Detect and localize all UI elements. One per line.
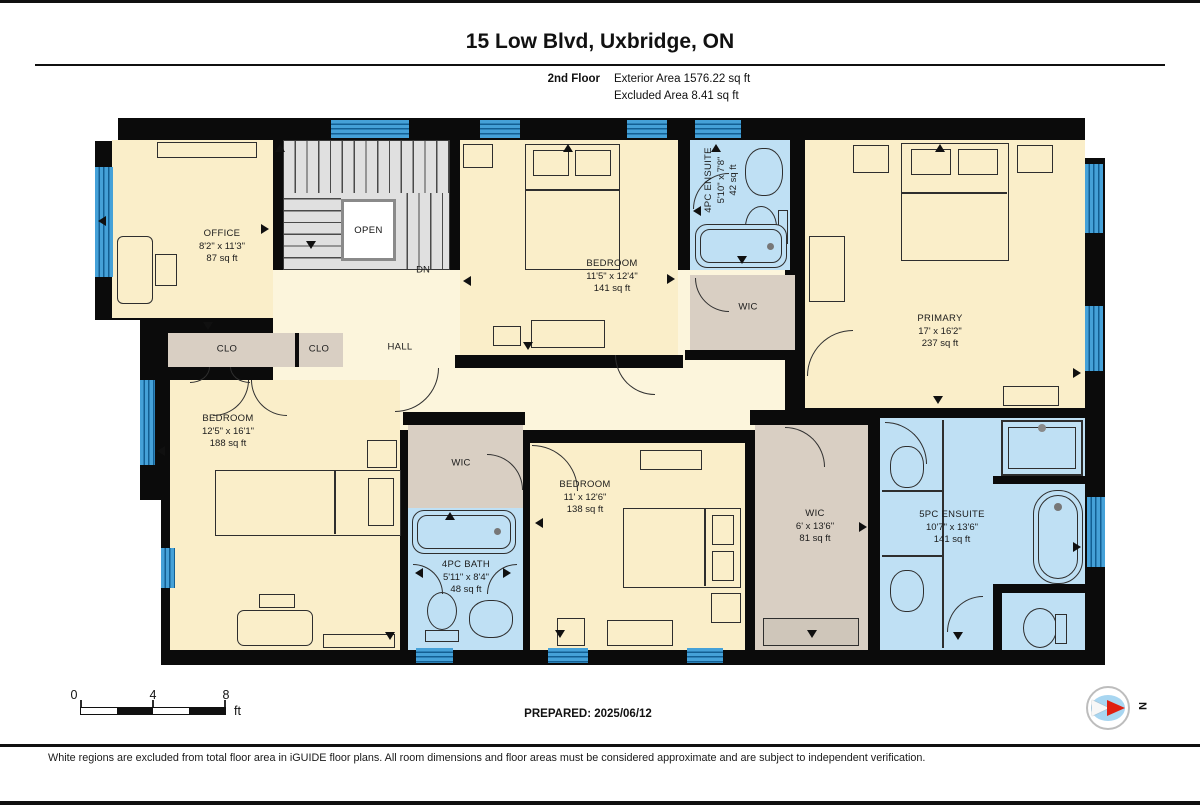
stair-down-arrow-icon bbox=[306, 241, 316, 249]
dresser-icon bbox=[640, 450, 702, 470]
direction-arrow bbox=[523, 342, 533, 350]
direction-arrow bbox=[203, 322, 213, 330]
blanket-line bbox=[902, 192, 1007, 194]
direction-arrow bbox=[693, 206, 701, 216]
window-icon bbox=[695, 120, 741, 138]
bathtub-icon bbox=[1033, 490, 1083, 584]
top-border bbox=[0, 0, 1200, 3]
chair-icon bbox=[155, 254, 177, 286]
stair-open-label: OPEN bbox=[341, 199, 396, 261]
bench-icon bbox=[607, 620, 673, 646]
stair-treads bbox=[396, 193, 449, 269]
room-label-bedroom-left: BEDROOM 12'5" x 16'1" 188 sq ft bbox=[202, 413, 254, 451]
exterior-notch bbox=[95, 500, 161, 665]
direction-arrow bbox=[1073, 542, 1081, 552]
nightstand-icon bbox=[367, 440, 397, 468]
page-title: 15 Low Blvd, Uxbridge, ON bbox=[0, 30, 1200, 54]
direction-arrow bbox=[157, 446, 165, 456]
wall-segment bbox=[993, 584, 1002, 650]
stair-treads bbox=[284, 193, 341, 269]
counter-line bbox=[882, 555, 942, 557]
room-label-wic-right: WIC 6' x 13'6" 81 sq ft bbox=[796, 508, 834, 546]
tub-drain bbox=[767, 243, 774, 250]
direction-arrow bbox=[555, 630, 565, 638]
direction-arrow bbox=[535, 518, 543, 528]
compass-icon bbox=[1086, 686, 1134, 730]
wall-segment bbox=[403, 412, 525, 425]
dresser-icon bbox=[531, 320, 605, 348]
direction-arrow bbox=[737, 256, 747, 264]
shower-head bbox=[1038, 424, 1046, 432]
room-label-hall: HALL bbox=[388, 342, 413, 355]
bed-icon bbox=[623, 508, 741, 588]
room-label-clo2: CLO bbox=[309, 344, 329, 357]
direction-arrow bbox=[933, 396, 943, 404]
excluded-area: Excluded Area 8.41 sq ft bbox=[614, 90, 739, 102]
room-label-wic-mid: WIC bbox=[451, 458, 470, 471]
window-icon bbox=[140, 380, 155, 465]
direction-arrow bbox=[385, 632, 395, 640]
desk-icon bbox=[237, 610, 313, 646]
room-label-bedroom-mid: BEDROOM 11' x 12'6" 138 sq ft bbox=[559, 479, 610, 517]
window-icon bbox=[480, 120, 520, 138]
direction-arrow bbox=[807, 630, 817, 638]
room-label-office: OFFICE 8'2" x 11'3" 87 sq ft bbox=[199, 228, 245, 266]
scale-tick-mark bbox=[80, 700, 82, 707]
wall-segment bbox=[993, 476, 1085, 484]
staircase: OPEN bbox=[283, 140, 450, 270]
pillow-icon bbox=[712, 551, 734, 581]
direction-arrow bbox=[463, 276, 471, 286]
toilet-icon bbox=[427, 592, 457, 630]
direction-arrow bbox=[503, 568, 511, 578]
nightstand-icon bbox=[463, 144, 493, 168]
window-icon bbox=[1087, 497, 1105, 567]
shower-inner bbox=[1008, 427, 1076, 469]
shelf-icon bbox=[157, 142, 257, 158]
direction-arrow bbox=[415, 568, 423, 578]
direction-arrow bbox=[1073, 368, 1081, 378]
nightstand-icon bbox=[493, 326, 521, 346]
dresser-icon bbox=[809, 236, 845, 302]
window-icon bbox=[331, 120, 409, 138]
bed-icon bbox=[215, 470, 401, 536]
wall-segment bbox=[993, 584, 1085, 593]
prepared-date: PREPARED: 2025/06/12 bbox=[438, 708, 738, 720]
bathtub-icon bbox=[412, 510, 516, 554]
desk-icon bbox=[117, 236, 153, 304]
blanket-line bbox=[526, 189, 619, 191]
nightstand-icon bbox=[711, 593, 741, 623]
stair-dn-label: DN bbox=[416, 265, 430, 278]
direction-arrow bbox=[953, 632, 963, 640]
wall-segment bbox=[685, 350, 795, 360]
wall-segment bbox=[750, 410, 873, 425]
counter-line bbox=[882, 490, 942, 492]
pillow-icon bbox=[368, 478, 394, 526]
tub-drain bbox=[494, 528, 501, 535]
window-icon bbox=[687, 648, 723, 663]
chair-icon bbox=[259, 594, 295, 608]
bench-icon bbox=[1003, 386, 1059, 406]
window-icon bbox=[548, 648, 588, 663]
blanket-line bbox=[334, 471, 336, 534]
scale-unit: ft bbox=[234, 704, 241, 718]
room-label-primary: PRIMARY 17' x 16'2" 237 sq ft bbox=[917, 313, 962, 351]
footer-rule bbox=[0, 744, 1200, 747]
room-label-clo1: CLO bbox=[217, 344, 237, 357]
blanket-line bbox=[704, 509, 706, 586]
exterior-notch bbox=[95, 118, 118, 141]
compass-north-label: N bbox=[1136, 702, 1148, 710]
direction-arrow bbox=[275, 144, 285, 152]
stair-treads bbox=[284, 141, 449, 193]
exterior-notch bbox=[1085, 118, 1105, 158]
pillow-icon bbox=[712, 515, 734, 545]
pillow-icon bbox=[911, 149, 951, 175]
scale-bar-segments bbox=[80, 707, 226, 715]
window-icon bbox=[416, 648, 453, 663]
room-label-wic-top: WIC bbox=[738, 302, 757, 315]
bed-icon bbox=[901, 143, 1009, 261]
pillow-icon bbox=[533, 150, 569, 176]
window-icon bbox=[1085, 306, 1103, 371]
direction-arrow bbox=[563, 144, 573, 152]
direction-arrow bbox=[261, 224, 269, 234]
direction-arrow bbox=[445, 512, 455, 520]
title-rule bbox=[35, 64, 1165, 66]
nightstand-icon bbox=[1017, 145, 1053, 173]
tub-drain bbox=[1054, 503, 1062, 511]
direction-arrow bbox=[859, 522, 867, 532]
wall-segment bbox=[295, 333, 299, 367]
toilet-tank-icon bbox=[425, 630, 459, 642]
window-icon bbox=[161, 548, 175, 588]
direction-arrow bbox=[935, 144, 945, 152]
floorplan: OPEN DN bbox=[95, 118, 1105, 665]
bottom-border bbox=[0, 801, 1200, 805]
room-label-bedroom-top: BEDROOM 11'5" x 12'4" 141 sq ft bbox=[586, 258, 637, 296]
sink-icon bbox=[890, 570, 924, 612]
floorplan-page: 15 Low Blvd, Uxbridge, ON 2nd Floor Exte… bbox=[0, 0, 1200, 805]
toilet-icon bbox=[1023, 608, 1057, 648]
exterior-area: Exterior Area 1576.22 sq ft bbox=[614, 73, 750, 85]
shower-icon bbox=[1001, 420, 1083, 476]
room-label-bath-4pc: 4PC BATH 5'11" x 8'4" 48 sq ft bbox=[442, 559, 490, 597]
nightstand-icon bbox=[853, 145, 889, 173]
sink-icon bbox=[469, 600, 513, 638]
scale-tick-mark bbox=[152, 700, 154, 707]
compass-north-arrow bbox=[1107, 700, 1125, 716]
floor-label: 2nd Floor bbox=[380, 73, 600, 85]
disclaimer-text: White regions are excluded from total fl… bbox=[48, 752, 1168, 764]
window-icon bbox=[627, 120, 667, 138]
direction-arrow bbox=[667, 274, 675, 284]
pillow-icon bbox=[575, 150, 611, 176]
room-label-ensuite-5pc: 5PC ENSUITE 10'7" x 13'6" 141 sq ft bbox=[919, 509, 985, 547]
direction-arrow bbox=[98, 216, 106, 226]
bed-icon bbox=[525, 144, 620, 270]
pillow-icon bbox=[958, 149, 998, 175]
window-icon bbox=[1085, 164, 1103, 233]
scale-tick-mark bbox=[224, 700, 226, 707]
sink-icon bbox=[745, 148, 783, 196]
scale-tick-0: 0 bbox=[71, 688, 78, 702]
room-label-ensuite-4pc: 4PC ENSUITE 5'10" x 7'8" 42 sq ft bbox=[703, 147, 741, 213]
toilet-tank-icon bbox=[1055, 614, 1067, 644]
